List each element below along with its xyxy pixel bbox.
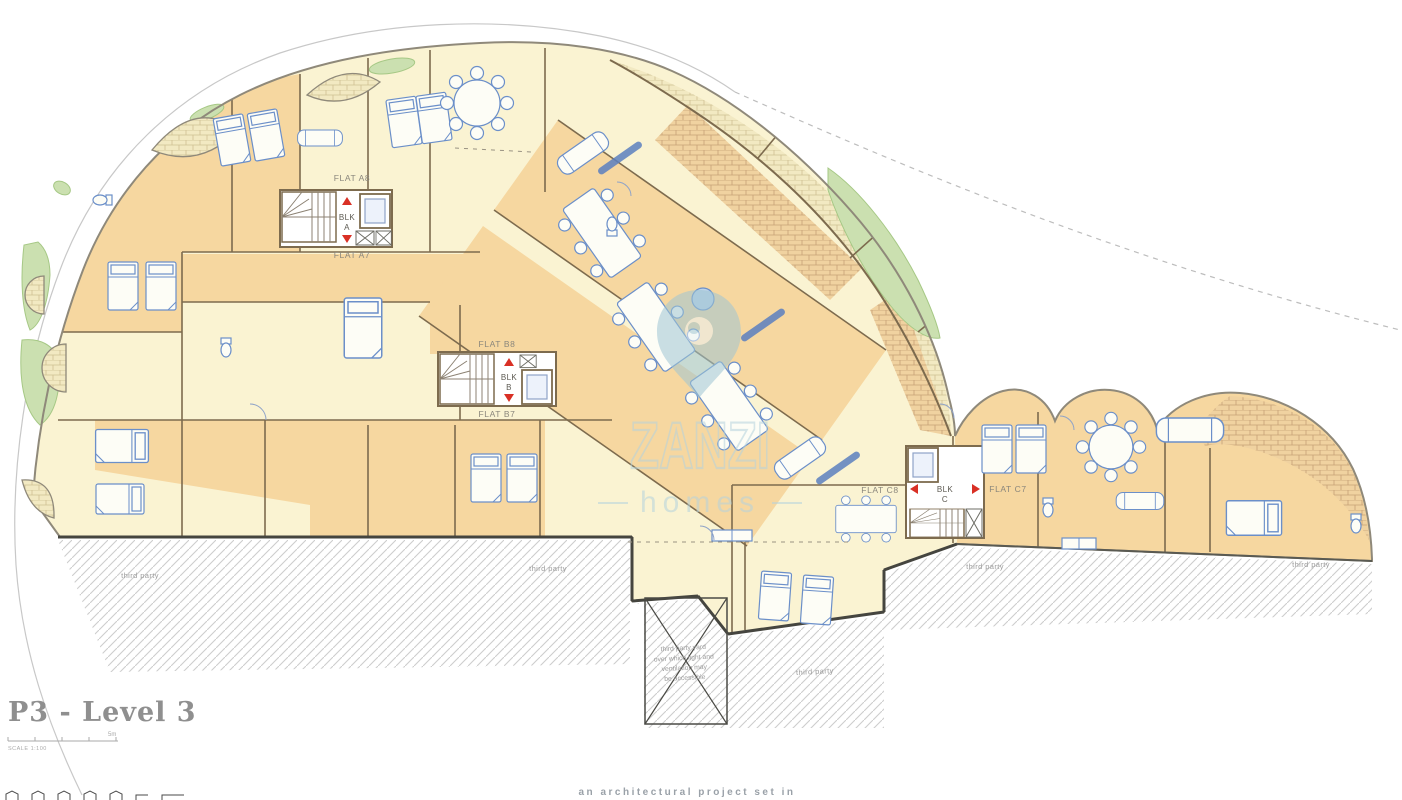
core-c-label-line2: C [942, 495, 948, 504]
elevator-c [908, 448, 938, 482]
flat-c7-label: FLAT C7 [989, 484, 1026, 494]
watermark-brand: ZANZI [630, 409, 770, 482]
third-party-label-4: third party [1292, 560, 1330, 569]
scale-end-label: 5m [108, 732, 116, 738]
core-b-label-line1: BLK [501, 373, 518, 382]
scale-label: SCALE 1:100 [8, 746, 47, 752]
core-blk-b: BLK B [438, 352, 556, 406]
floor-plan-canvas: BLK A BLK B BLK C [0, 0, 1402, 800]
stairs-b [440, 354, 494, 404]
round-dining-table-c7 [1076, 412, 1145, 481]
watermark-sub: homes [640, 486, 760, 519]
flat-b7-label: FLAT B7 [479, 409, 516, 419]
flat-a7-label: FLAT A7 [334, 250, 371, 260]
third-party-label-1: third party [121, 571, 159, 580]
third-party-label-2: third party [529, 564, 567, 573]
dining-table-c8 [836, 496, 896, 542]
flat-b8-label: FLAT B8 [479, 339, 516, 349]
scale-bar: 5m SCALE 1:100 [8, 732, 118, 752]
core-blk-a: BLK A [280, 190, 392, 247]
core-b-label-line2: B [506, 383, 512, 392]
page-title: P3 - Level 3 [8, 697, 197, 728]
elevator-a [360, 194, 390, 228]
core-c-label-line1: BLK [937, 485, 954, 494]
floor-plan-page: BLK A BLK B BLK C [0, 0, 1402, 800]
flat-c8-label: FLAT C8 [861, 485, 898, 495]
elevator-b [522, 370, 552, 404]
footer-tagline: an architectural project set in [579, 787, 796, 798]
core-a-label-line1: BLK [339, 213, 356, 222]
round-dining-table [441, 67, 514, 140]
core-a-label-line2: A [344, 223, 350, 232]
title-block: P3 - Level 3 5m SCALE 1:100 [6, 697, 197, 800]
third-party-label-3: third party [966, 562, 1004, 571]
flat-a8-label: FLAT A8 [334, 173, 371, 183]
stairs-c [910, 509, 964, 537]
stairs-a [282, 192, 336, 242]
core-blk-c: BLK C [906, 446, 984, 538]
cropped-footer-logos [6, 791, 184, 800]
